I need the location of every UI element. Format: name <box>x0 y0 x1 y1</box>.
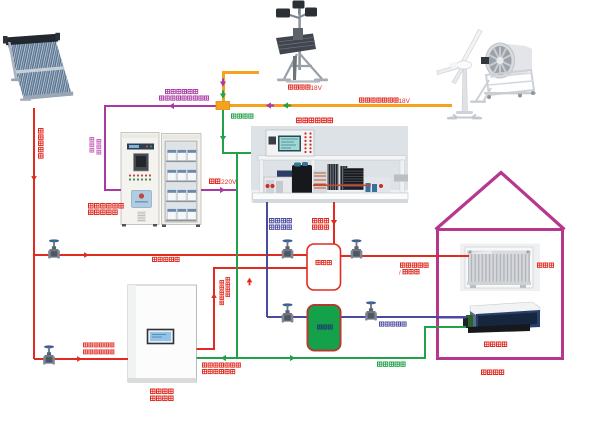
svg-text:18V: 18V <box>399 98 411 105</box>
svg-text:18V: 18V <box>311 85 323 92</box>
svg-text:220V: 220V <box>221 179 237 186</box>
